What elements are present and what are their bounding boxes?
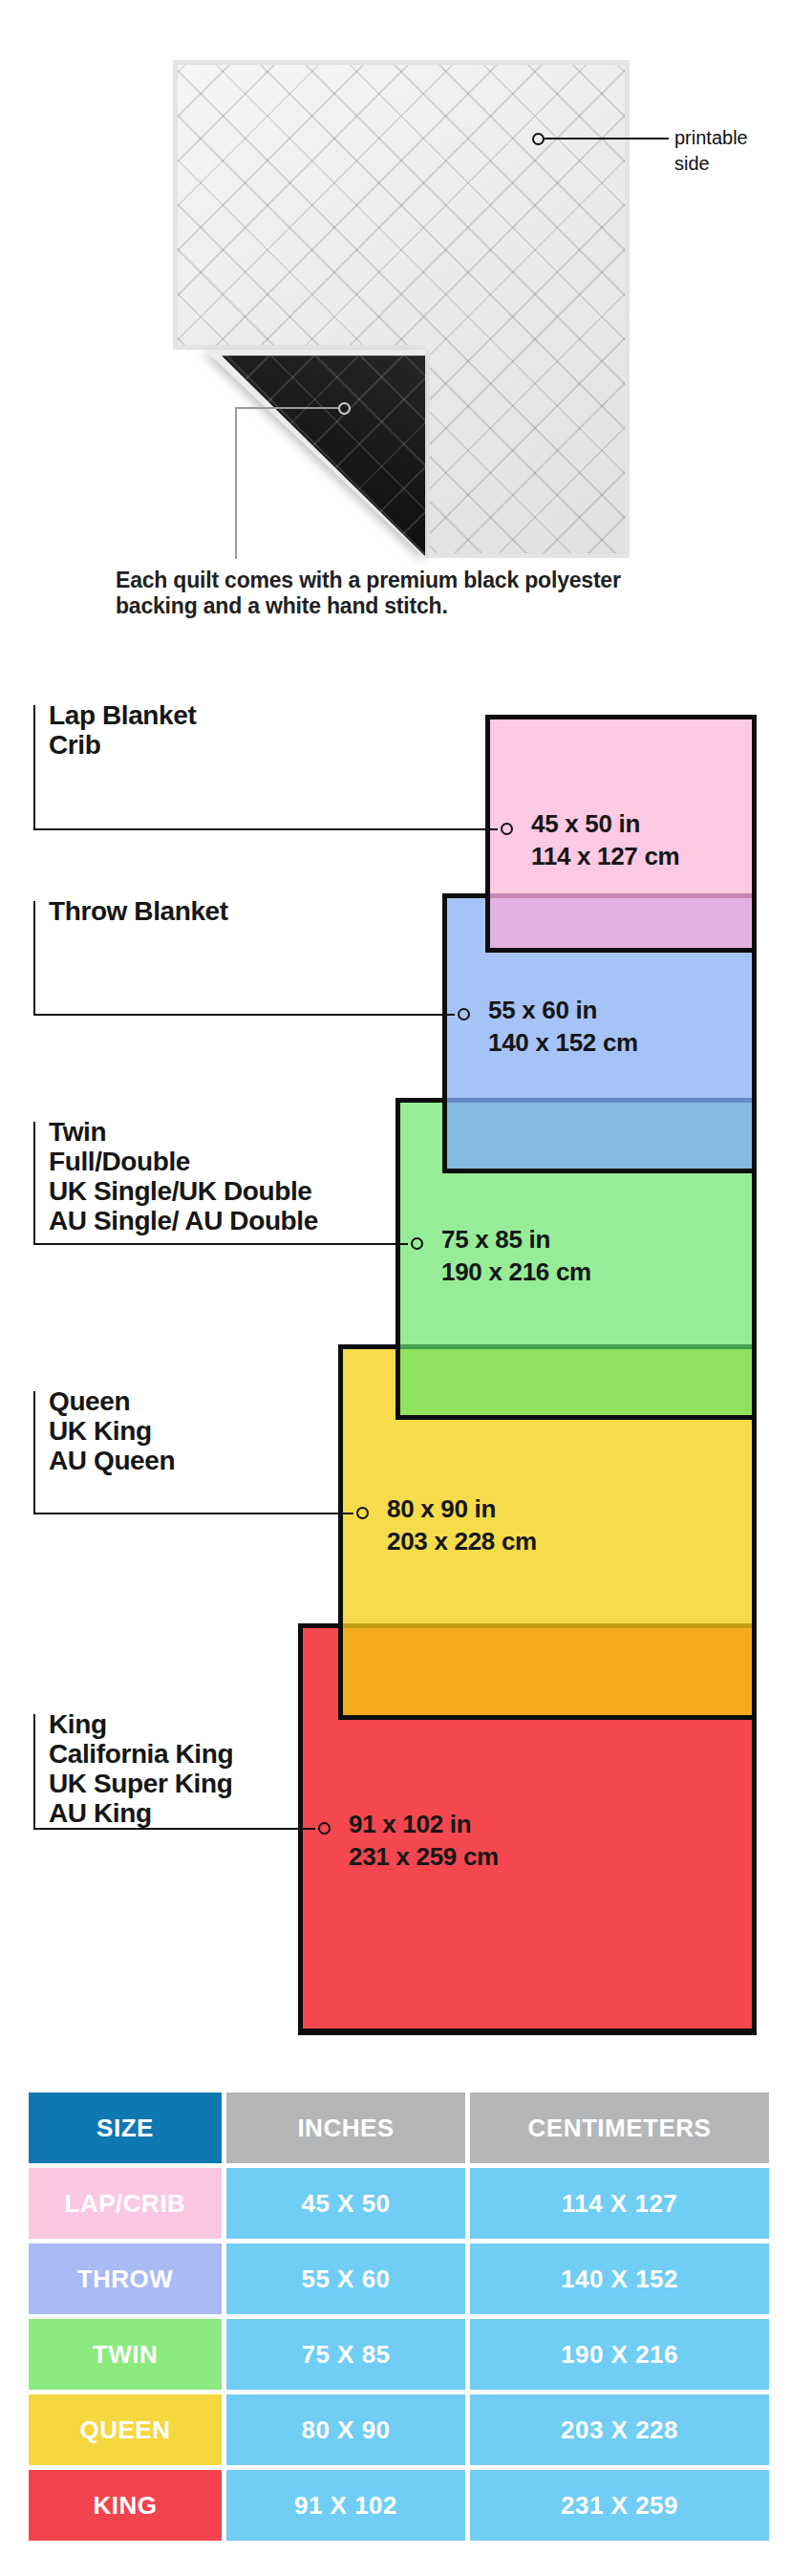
quilt-binding-right bbox=[625, 60, 630, 558]
overlap-queen-king bbox=[343, 1623, 752, 1715]
size-label-king: King California King UK Super King AU Ki… bbox=[49, 1709, 233, 1828]
size-chart-infographic: printable side Each quilt comes with a p… bbox=[0, 0, 791, 2576]
connector-throw-vertical bbox=[33, 901, 35, 1016]
printable-side-line bbox=[545, 138, 669, 140]
table-row-queen-inches: 80 X 90 bbox=[226, 2394, 465, 2465]
size-label-line: UK King bbox=[49, 1416, 175, 1446]
size-label-line: California King bbox=[49, 1739, 233, 1769]
table-row-queen-cm: 203 X 228 bbox=[470, 2394, 769, 2465]
size-label-line: Queen bbox=[49, 1386, 175, 1416]
overlap-throw-twin bbox=[447, 1098, 752, 1169]
printable-side-label-line1: printable bbox=[674, 125, 748, 151]
quilt-black-backing-fold bbox=[204, 350, 425, 558]
callout-dot-lap bbox=[501, 823, 513, 835]
black-backing-dot bbox=[338, 402, 351, 415]
size-value-cm: 114 x 127 cm bbox=[531, 840, 679, 872]
size-value-king: 91 x 102 in 231 x 259 cm bbox=[349, 1808, 499, 1873]
table-row-twin-cm: 190 X 216 bbox=[470, 2319, 769, 2390]
connector-queen-vertical bbox=[33, 1391, 35, 1514]
callout-dot-queen bbox=[356, 1507, 369, 1519]
quilt-caption-line1: Each quilt comes with a premium black po… bbox=[116, 568, 727, 593]
size-label-throw: Throw Blanket bbox=[49, 896, 228, 926]
size-label-line: AU Queen bbox=[49, 1446, 175, 1475]
callout-dot-twin bbox=[411, 1237, 423, 1250]
table-row-twin-inches: 75 X 85 bbox=[226, 2319, 465, 2390]
size-table: SIZE INCHES CENTIMETERS LAP/CRIB 45 X 50… bbox=[29, 2093, 769, 2541]
size-value-lap: 45 x 50 in 114 x 127 cm bbox=[531, 807, 679, 872]
size-label-line: Full/Double bbox=[49, 1147, 318, 1176]
size-value-twin: 75 x 85 in 190 x 216 cm bbox=[441, 1223, 591, 1288]
connector-lap-horizontal bbox=[33, 828, 498, 830]
table-row-king-inches: 91 X 102 bbox=[226, 2470, 465, 2541]
quilt-binding-fold-vertical bbox=[425, 350, 430, 558]
size-value-cm: 190 x 216 cm bbox=[441, 1256, 591, 1288]
table-row-twin-size: TWIN bbox=[29, 2319, 222, 2390]
callout-dot-king bbox=[318, 1822, 331, 1835]
quilt-caption: Each quilt comes with a premium black po… bbox=[116, 568, 727, 619]
printable-side-label: printable side bbox=[674, 125, 748, 177]
callout-dot-throw bbox=[458, 1008, 470, 1020]
size-value-throw: 55 x 60 in 140 x 152 cm bbox=[488, 994, 638, 1059]
quilt-binding-bottom bbox=[425, 553, 630, 558]
connector-lap-vertical bbox=[33, 705, 35, 829]
size-value-inches: 45 x 50 in bbox=[531, 807, 679, 840]
overlap-twin-queen bbox=[400, 1344, 752, 1415]
connector-king-horizontal bbox=[33, 1828, 315, 1830]
size-value-inches: 75 x 85 in bbox=[441, 1223, 591, 1256]
connector-queen-horizontal bbox=[33, 1513, 353, 1514]
size-value-cm: 140 x 152 cm bbox=[488, 1026, 638, 1059]
size-value-inches: 91 x 102 in bbox=[349, 1808, 499, 1840]
table-header-inches: INCHES bbox=[226, 2093, 465, 2163]
size-value-inches: 55 x 60 in bbox=[488, 994, 638, 1026]
printable-side-dot bbox=[532, 133, 545, 145]
table-row-lap-inches: 45 X 50 bbox=[226, 2168, 465, 2239]
table-row-throw-size: THROW bbox=[29, 2243, 222, 2314]
table-row-throw-cm: 140 X 152 bbox=[470, 2243, 769, 2314]
table-row-lap-cm: 114 X 127 bbox=[470, 2168, 769, 2239]
size-label-line: Crib bbox=[49, 730, 196, 760]
table-row-lap-size: LAP/CRIB bbox=[29, 2168, 222, 2239]
size-value-cm: 231 x 259 cm bbox=[349, 1840, 499, 1873]
size-label-line: AU King bbox=[49, 1798, 233, 1828]
table-header-centimeters: CENTIMETERS bbox=[470, 2093, 769, 2163]
size-label-line: UK Single/UK Double bbox=[49, 1176, 318, 1206]
size-value-cm: 203 x 228 cm bbox=[387, 1525, 537, 1557]
quilt-binding-left bbox=[173, 60, 178, 350]
connector-king-vertical bbox=[33, 1714, 35, 1830]
table-header-size: SIZE bbox=[29, 2093, 222, 2163]
black-backing-line-horizontal bbox=[236, 407, 338, 409]
quilt-caption-line2: backing and a white hand stitch. bbox=[116, 593, 727, 619]
connector-twin-vertical bbox=[33, 1122, 35, 1245]
table-row-queen-size: QUEEN bbox=[29, 2394, 222, 2465]
size-label-line: Lap Blanket bbox=[49, 700, 196, 730]
size-value-queen: 80 x 90 in 203 x 228 cm bbox=[387, 1492, 537, 1557]
black-backing-line-vertical bbox=[235, 407, 237, 559]
connector-twin-horizontal bbox=[33, 1243, 408, 1245]
table-row-throw-inches: 55 X 60 bbox=[226, 2243, 465, 2314]
size-label-line: King bbox=[49, 1709, 233, 1739]
size-label-twin: Twin Full/Double UK Single/UK Double AU … bbox=[49, 1117, 318, 1235]
size-label-queen: Queen UK King AU Queen bbox=[49, 1386, 175, 1475]
size-label-lap: Lap Blanket Crib bbox=[49, 700, 196, 760]
size-label-line: Throw Blanket bbox=[49, 896, 228, 926]
connector-throw-horizontal bbox=[33, 1014, 455, 1016]
printable-side-label-line2: side bbox=[674, 151, 748, 177]
size-label-line: AU Single/ AU Double bbox=[49, 1206, 318, 1235]
table-row-king-size: KING bbox=[29, 2470, 222, 2541]
overlap-lap-throw bbox=[490, 893, 752, 948]
quilt-binding-top bbox=[173, 60, 630, 65]
size-label-line: UK Super King bbox=[49, 1769, 233, 1798]
size-label-line: Twin bbox=[49, 1117, 318, 1147]
table-row-king-cm: 231 X 259 bbox=[470, 2470, 769, 2541]
size-value-inches: 80 x 90 in bbox=[387, 1492, 537, 1525]
